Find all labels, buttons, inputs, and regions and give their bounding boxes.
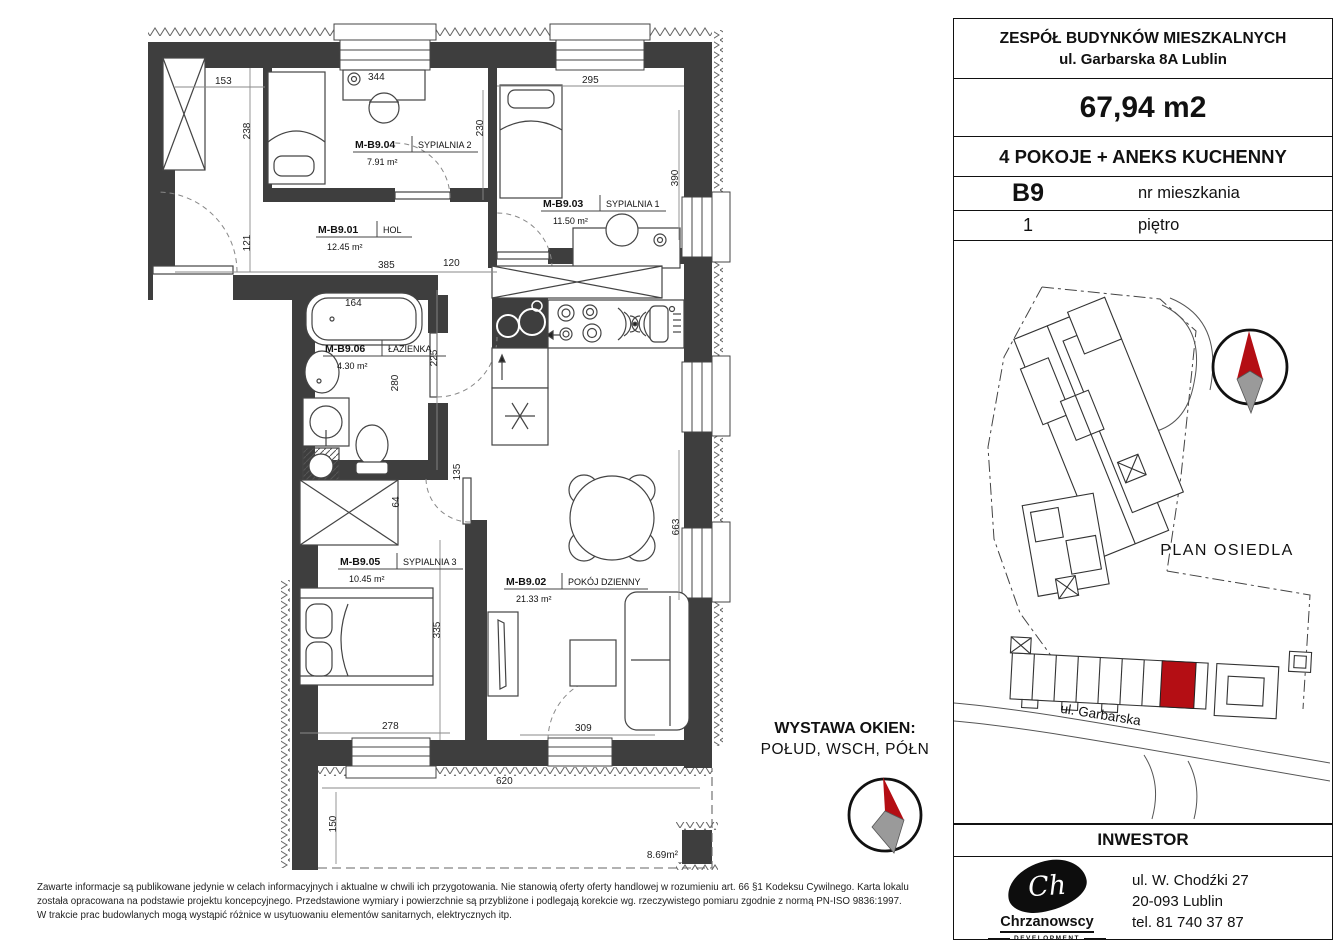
investor-company: Chrzanowscy xyxy=(1000,914,1093,933)
building-title: ZESPÓŁ BUDYNKÓW MIESZKALNYCH xyxy=(954,30,1332,48)
room-label-sypialnia1: M-B9.03 SYPIALNIA 1 11.50 m² xyxy=(541,195,666,226)
unit-number-row: B9 nr mieszkania xyxy=(954,177,1332,211)
unit-number: B9 xyxy=(954,179,1102,208)
floor-plan-drawing: 8.69m² 153 344 295 238 230 390 121 xyxy=(0,0,950,942)
svg-text:HOL: HOL xyxy=(383,225,402,235)
investor-header: INWESTOR xyxy=(954,823,1332,857)
apartment-layout: 4 POKOJE + ANEKS KUCHENNY xyxy=(954,137,1332,177)
svg-text:10.45 m²: 10.45 m² xyxy=(349,574,385,584)
building-right xyxy=(1214,648,1311,721)
floor-label: piętro xyxy=(1102,216,1332,235)
north-compass-icon xyxy=(1213,330,1287,413)
svg-text:335: 335 xyxy=(432,621,443,638)
disclaimer-line: Zawarte informacje są publikowane jedyni… xyxy=(37,881,942,895)
investor-phone: tel. 81 740 37 87 xyxy=(1132,912,1249,933)
svg-text:M-B9.05: M-B9.05 xyxy=(340,556,380,568)
title-block: ZESPÓŁ BUDYNKÓW MIESZKALNYCH ul. Garbars… xyxy=(954,19,1332,79)
building-address: ul. Garbarska 8A Lublin xyxy=(954,51,1332,68)
svg-text:64: 64 xyxy=(391,496,402,508)
logo-monogram: Ch xyxy=(1027,870,1067,904)
highlighted-unit xyxy=(1160,661,1196,709)
unit-number-label: nr mieszkania xyxy=(1102,184,1332,203)
floor-row: 1 piętro xyxy=(954,211,1332,241)
svg-text:POKÓJ DZIENNY: POKÓJ DZIENNY xyxy=(568,577,641,587)
svg-text:150: 150 xyxy=(328,815,339,832)
site-plan-drawing: ul. Garbarska PLAN OSIEDLA xyxy=(954,241,1330,822)
svg-text:M-B9.02: M-B9.02 xyxy=(506,576,546,588)
svg-text:M-B9.03: M-B9.03 xyxy=(543,198,583,210)
disclaimer: Zawarte informacje są publikowane jedyni… xyxy=(37,881,942,923)
balcony-area-label: 8.69m² xyxy=(647,850,679,861)
svg-text:344: 344 xyxy=(368,72,385,83)
svg-text:164: 164 xyxy=(345,298,362,309)
svg-text:12.45 m²: 12.45 m² xyxy=(327,242,363,252)
svg-text:11.50 m²: 11.50 m² xyxy=(553,216,588,226)
apartment-area: 67,94 m2 xyxy=(954,79,1332,137)
window-exposure: WYSTAWA OKIEN: POŁUD, WSCH, PÓŁN xyxy=(748,720,942,759)
investor-block: Ch Chrzanowscy DEVELOPMENT ul. W. Chodźk… xyxy=(954,857,1332,942)
svg-text:280: 280 xyxy=(390,374,401,391)
site-plan-title: PLAN OSIEDLA xyxy=(1160,542,1294,559)
building-strip xyxy=(1008,637,1209,717)
svg-text:121: 121 xyxy=(242,234,253,251)
svg-text:SYPIALNIA 1: SYPIALNIA 1 xyxy=(606,199,660,209)
disclaimer-line: została opracowana na podstawie projektu… xyxy=(37,895,942,909)
svg-text:620: 620 xyxy=(496,776,513,787)
svg-text:SYPIALNIA 3: SYPIALNIA 3 xyxy=(403,557,457,567)
investor-logo-icon: Ch xyxy=(1003,855,1090,918)
investor-address: ul. W. Chodźki 27 20-093 Lublin tel. 81 … xyxy=(1132,870,1249,933)
svg-text:4.30 m²: 4.30 m² xyxy=(337,361,368,371)
investor-company-subtitle: DEVELOPMENT xyxy=(988,935,1106,942)
svg-text:309: 309 xyxy=(575,723,592,734)
svg-text:153: 153 xyxy=(215,76,232,87)
svg-text:21.33 m²: 21.33 m² xyxy=(516,594,552,604)
svg-text:390: 390 xyxy=(670,169,681,186)
svg-text:135: 135 xyxy=(452,463,463,480)
svg-text:663: 663 xyxy=(671,518,682,535)
disclaimer-line: W trakcie prac budowlanych mogą wystąpić… xyxy=(37,909,942,923)
svg-text:120: 120 xyxy=(443,258,460,269)
exposure-compass-icon xyxy=(849,777,921,853)
svg-text:230: 230 xyxy=(475,119,486,136)
room-label-sypialnia2: M-B9.04 SYPIALNIA 2 7.91 m² xyxy=(353,136,478,167)
svg-text:295: 295 xyxy=(582,75,599,86)
svg-text:7.91 m²: 7.91 m² xyxy=(367,157,398,167)
floor-number: 1 xyxy=(954,215,1102,236)
balcony: 8.69m² xyxy=(318,768,712,868)
svg-text:M-B9.06: M-B9.06 xyxy=(325,343,365,355)
room-label-sypialnia3: M-B9.05 SYPIALNIA 3 10.45 m² xyxy=(338,553,463,584)
investor-logo: Ch Chrzanowscy DEVELOPMENT xyxy=(988,861,1106,942)
svg-text:278: 278 xyxy=(382,721,399,732)
svg-text:SYPIALNIA 2: SYPIALNIA 2 xyxy=(418,140,472,150)
svg-text:M-B9.04: M-B9.04 xyxy=(355,139,395,151)
svg-text:M-B9.01: M-B9.01 xyxy=(318,224,358,236)
info-panel: ZESPÓŁ BUDYNKÓW MIESZKALNYCH ul. Garbars… xyxy=(953,18,1333,940)
apartment-card: 8.69m² 153 344 295 238 230 390 121 xyxy=(0,0,1335,942)
room-label-hol: M-B9.01 HOL 12.45 m² xyxy=(316,221,412,252)
svg-text:385: 385 xyxy=(378,260,395,271)
svg-text:238: 238 xyxy=(242,122,253,139)
investor-address-line: ul. W. Chodźki 27 xyxy=(1132,870,1249,891)
exposure-directions: POŁUD, WSCH, PÓŁN xyxy=(748,741,942,759)
investor-address-line: 20-093 Lublin xyxy=(1132,891,1249,912)
exposure-label: WYSTAWA OKIEN: xyxy=(748,720,942,738)
site-plan: ul. Garbarska PLAN OSIEDLA xyxy=(954,241,1332,825)
svg-text:ŁAZIENKA: ŁAZIENKA xyxy=(388,344,432,354)
